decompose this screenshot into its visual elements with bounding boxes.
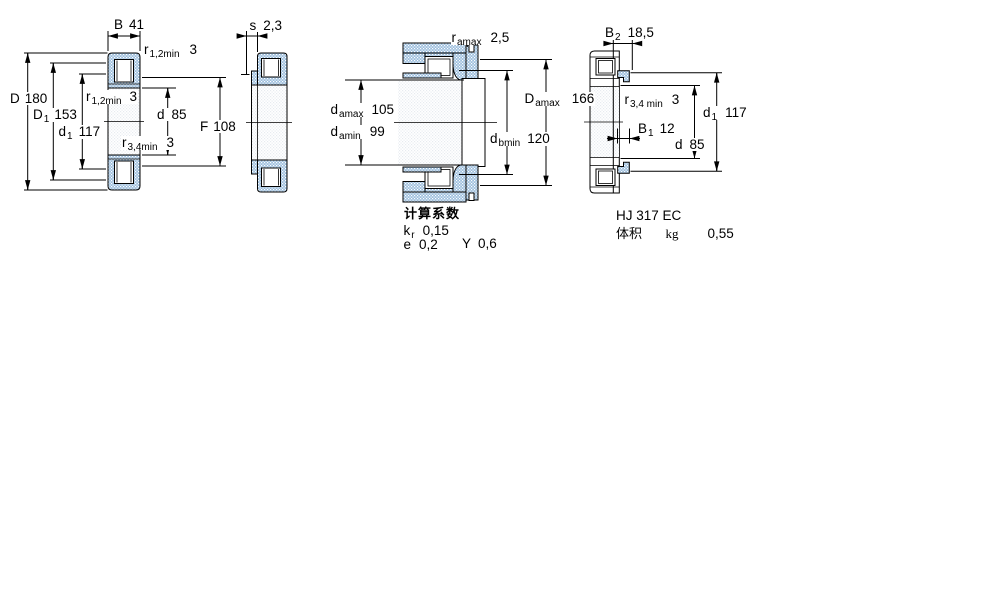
outer-ring-flange-top [453,53,466,80]
dim-label-D-amax: Damax166 [524,92,596,106]
housing-bottom [403,192,466,202]
dim-label-width-B: B41 [113,18,145,31]
dim-label-d-bmin: dbmin120 [489,132,551,146]
drawing-linework [0,0,1000,600]
inner-ring-face-bottom [252,160,258,174]
dim-label-d1-ring: d1117 [702,106,748,120]
factor-e: e0,2 [403,238,439,251]
view-side-cross-section [239,31,293,192]
outer-ring-top [403,53,425,64]
view-mounting-diagram [345,41,552,202]
dim-label-bore-d: d85 [156,108,188,121]
dim-label-r12min-top: r1,2min3 [143,43,198,57]
dim-label-r34min: r3,4min3 [121,136,175,150]
outer-ring-bottom [403,182,425,193]
dim-label-outer-diameter-D: D180 [9,92,48,105]
dim-label-r12min-mid: r1,2min3 [85,90,138,104]
dim-label-B2: B218,5 [604,26,655,40]
mass-label: 体积 [615,227,643,240]
mass-unit: kg [665,227,680,240]
dim-label-r34min-ring: r3,4 min3 [624,93,681,107]
r-amax-recess-bottom [469,193,474,201]
inner-ring-top [403,73,441,78]
outer-ring-flange-bottom [453,165,466,192]
factor-Y: Y0,6 [461,237,498,250]
bearing-technical-drawing: B41 r1,2min3 D180 D1153 r1,2min3 d1117 d… [0,0,1000,600]
dim-label-D1: D1153 [32,108,78,122]
dim-label-s: s2,3 [249,19,284,32]
dim-label-bore-d-ring: d85 [674,138,706,151]
angle-ring-designation: HJ 317 EC [615,209,682,222]
calculation-factors-title: 计算系数 [403,207,461,220]
dim-label-d-amax: damax105 [330,103,396,117]
mass-value: 0,55 [707,227,735,240]
inner-ring-face-top [252,71,258,85]
inner-ring-bottom [403,167,441,172]
dim-label-r-amax: ramax2,5 [451,31,511,45]
dim-label-B1: B112 [637,122,676,136]
dim-label-F: F108 [199,120,237,133]
dim-label-d-amin: damin99 [330,125,386,139]
dim-label-d1: d1117 [58,125,102,139]
